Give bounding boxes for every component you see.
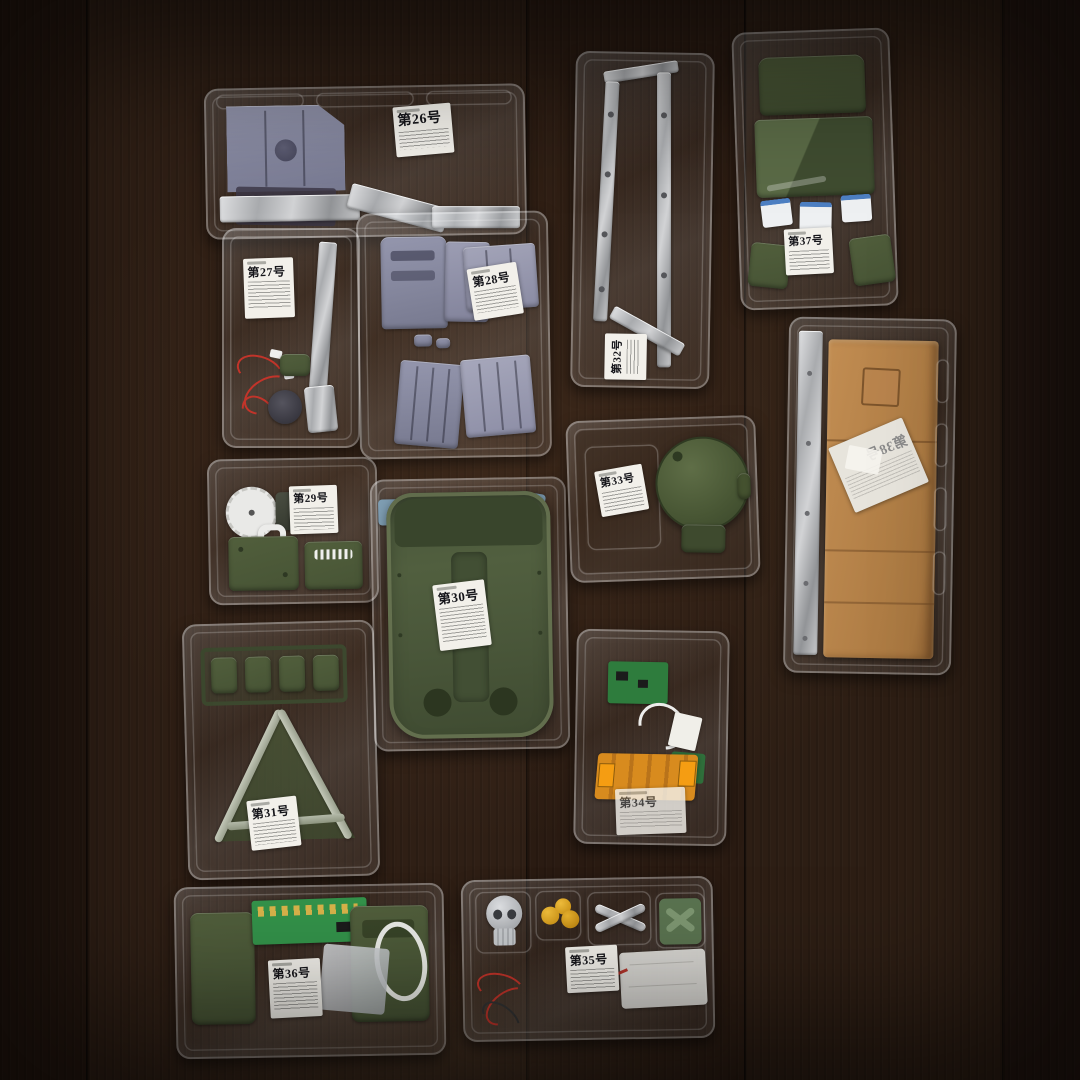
foil-bag: [318, 943, 390, 1015]
label-fine-print: [399, 127, 450, 149]
tray-issue-29: 第29号: [207, 457, 380, 606]
issue-number: 第26号: [397, 111, 448, 130]
wire-bundle: [474, 967, 537, 1026]
tray-issue-38: 第38号: [783, 317, 957, 676]
rail-hole: [601, 231, 607, 237]
issue-number: 第29号: [293, 493, 333, 506]
tray-issue-32: 第32号: [570, 51, 715, 389]
floor-panel-part: [460, 354, 537, 438]
panel-groove: [514, 360, 521, 429]
seat-part: [380, 236, 448, 329]
embossed-square: [861, 367, 901, 407]
sticker-box-part: [840, 194, 872, 223]
sticker-box-part: [760, 198, 793, 228]
panel-groove: [302, 110, 305, 186]
metal-strip-part: [793, 331, 823, 655]
gearbox-part: [228, 536, 299, 591]
bag-crease: [629, 983, 697, 988]
tray-issue-36: 第36号: [174, 883, 447, 1060]
bag-crease: [630, 961, 694, 965]
hull-well: [423, 688, 451, 716]
gold-piece: [561, 910, 579, 928]
label-header-line: [293, 489, 311, 493]
small-olive-part: [280, 354, 310, 376]
panel-groove: [442, 369, 450, 443]
rivet: [806, 441, 811, 446]
issue-number: 第27号: [247, 265, 289, 279]
metal-strip-part: [220, 194, 360, 222]
molded-ridge: [935, 423, 949, 467]
rail-hole: [605, 171, 611, 177]
issue-label: 第32号: [604, 333, 647, 380]
issue-label: 第30号: [432, 579, 492, 651]
pcb-pads: [258, 903, 358, 916]
flex-connector: [597, 763, 615, 787]
dome-neck-part: [681, 524, 725, 553]
label-header-line: [247, 261, 266, 265]
panel-groove: [426, 368, 434, 442]
issue-label: 第35号: [565, 945, 619, 994]
screw: [283, 572, 288, 577]
wedge-part: [848, 233, 896, 286]
label-fine-print: [474, 285, 519, 313]
tray-issue-37: 第37号: [731, 27, 899, 310]
issue-number: 第37号: [788, 235, 829, 249]
label-fine-print: [294, 506, 335, 529]
issue-label: 第33号: [594, 464, 649, 518]
issue-label: 第34号: [615, 787, 687, 835]
tray-issue-33: 第33号: [565, 415, 761, 584]
floor-panel-part: [394, 360, 465, 449]
hull-rear-panel-part: [758, 54, 866, 116]
issue-label: 第36号: [268, 958, 323, 1019]
hull-deck-panel-part: [226, 104, 345, 192]
roller-part: [313, 654, 340, 691]
cylinder-housing-part: [304, 541, 363, 590]
spring-part: [314, 549, 352, 560]
rail-hole: [661, 192, 667, 198]
crease-line: [824, 601, 934, 605]
issue-label: 第26号: [392, 103, 454, 158]
panel-groove: [264, 111, 267, 187]
roller-part: [211, 657, 238, 694]
chip: [638, 680, 648, 688]
blade-part: [309, 242, 337, 393]
tray-issue-34: 第34号: [573, 629, 730, 847]
rotated-label-content: 第32号: [604, 335, 647, 378]
label-fine-print: [602, 486, 645, 513]
small-purple-part: [414, 334, 432, 346]
chip: [616, 671, 628, 680]
label-fine-print: [439, 603, 487, 642]
issue-number: 第32号: [613, 339, 625, 374]
rivet: [803, 581, 808, 586]
gold-nugget-part: [541, 896, 582, 933]
circuit-board: [608, 661, 669, 704]
issue-number: 第34号: [619, 795, 681, 810]
skull-eye: [507, 909, 516, 919]
issue-number: 第35号: [569, 953, 614, 968]
skull-jaw: [493, 928, 515, 945]
label-fine-print: [253, 818, 297, 845]
dome-tab-part: [737, 473, 751, 499]
panel-groove: [496, 362, 503, 431]
roadwheel-part: [268, 390, 302, 424]
tray-issue-30: 第30号: [370, 476, 571, 751]
suspension-rail-part: [593, 81, 620, 321]
dome-knob: [672, 451, 682, 461]
label-fine-print: [789, 249, 830, 271]
crossbones-part: [591, 899, 650, 938]
gear-axle: [249, 510, 255, 516]
skull-part: [483, 895, 526, 950]
small-purple-part: [436, 338, 450, 348]
bolt: [538, 631, 542, 635]
rail-hole: [599, 286, 605, 292]
bolt: [537, 571, 541, 575]
roller-part: [245, 656, 272, 693]
label-fine-print: [273, 981, 318, 1011]
hull-well: [489, 687, 517, 715]
rail-hole: [661, 272, 667, 278]
rivet: [805, 511, 810, 516]
screw: [238, 547, 243, 552]
issue-label: 第29号: [289, 485, 339, 535]
flex-connector: [678, 760, 697, 786]
issue-number: 第36号: [272, 966, 317, 981]
skull-head: [486, 895, 523, 932]
label-fine-print: [626, 340, 639, 374]
skull-eye: [493, 909, 502, 919]
rivet: [802, 636, 807, 641]
issue-label: 第27号: [243, 257, 295, 319]
blade-base-part: [304, 385, 339, 434]
bolt: [397, 573, 401, 577]
seat-slot: [391, 270, 435, 281]
tray-issue-31: 第31号: [182, 620, 381, 881]
molded-ridge: [932, 551, 946, 595]
suspension-rail-part: [657, 72, 671, 367]
battery-bag: [619, 948, 708, 1008]
tray-issue-27: 第27号: [222, 228, 360, 448]
rivet: [807, 371, 812, 376]
issue-label: 第31号: [246, 796, 301, 851]
crease-line: [825, 549, 935, 553]
roller-part: [279, 655, 306, 692]
tray-issue-28: 第28号: [356, 210, 552, 459]
seat-slot: [391, 250, 435, 261]
roller-sprue-part: [200, 644, 347, 706]
tray-issue-35: 第35号: [461, 876, 716, 1042]
parts-tag: [668, 712, 703, 751]
rail-hole: [608, 111, 614, 117]
label-fine-print: [570, 967, 615, 989]
bolt: [398, 633, 402, 637]
photo-scene: 第26号 第27号: [0, 0, 1080, 1080]
housing-box-part: [190, 912, 256, 1025]
panel-groove: [410, 366, 418, 440]
issue-label: 第37号: [784, 227, 834, 275]
issue-label: 第28号: [466, 262, 524, 321]
label-fine-print: [248, 280, 291, 309]
chip: [336, 922, 350, 932]
molded-ridge: [316, 91, 414, 108]
rail-hole: [661, 112, 667, 118]
green-emblem-part: [659, 898, 702, 945]
panel-groove: [478, 363, 485, 432]
hull-front-deck: [394, 497, 543, 548]
label-fine-print: [620, 810, 683, 828]
hatch-circle: [275, 139, 297, 161]
molded-ridge: [936, 359, 950, 403]
molded-ridge: [933, 487, 947, 531]
